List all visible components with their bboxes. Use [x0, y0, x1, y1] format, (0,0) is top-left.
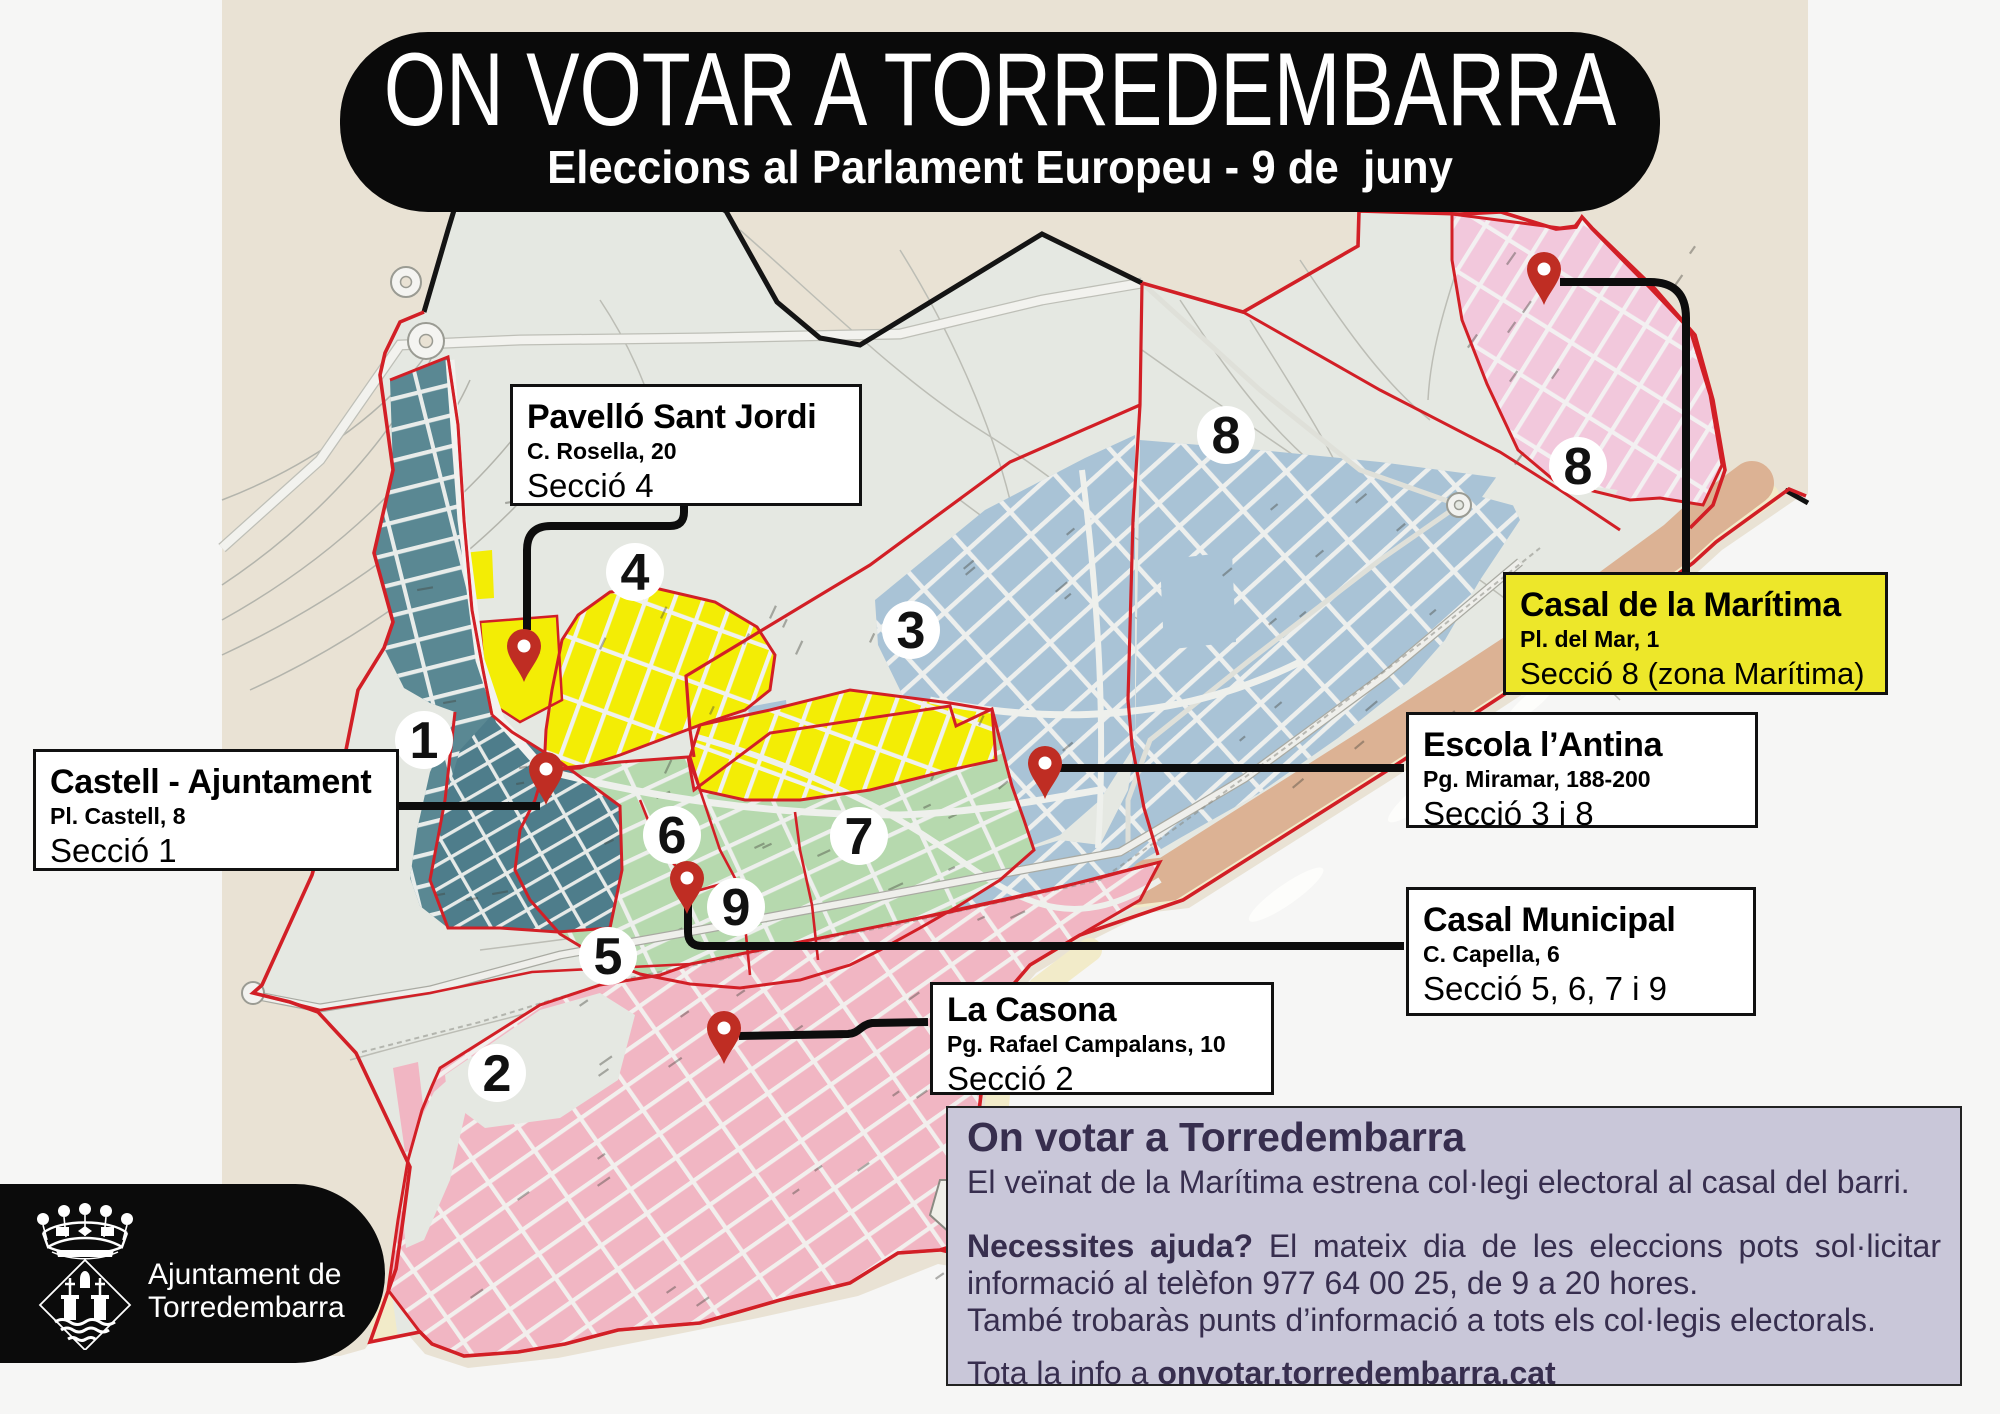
svg-text:8: 8	[1212, 407, 1241, 465]
svg-text:7: 7	[845, 808, 874, 866]
svg-text:3: 3	[897, 602, 926, 660]
svg-text:4: 4	[621, 544, 650, 602]
svg-text:8: 8	[1564, 438, 1593, 496]
svg-text:9: 9	[722, 879, 751, 937]
svg-text:6: 6	[658, 807, 687, 865]
svg-text:1: 1	[410, 712, 439, 770]
svg-text:2: 2	[483, 1045, 512, 1103]
svg-text:5: 5	[594, 928, 623, 986]
